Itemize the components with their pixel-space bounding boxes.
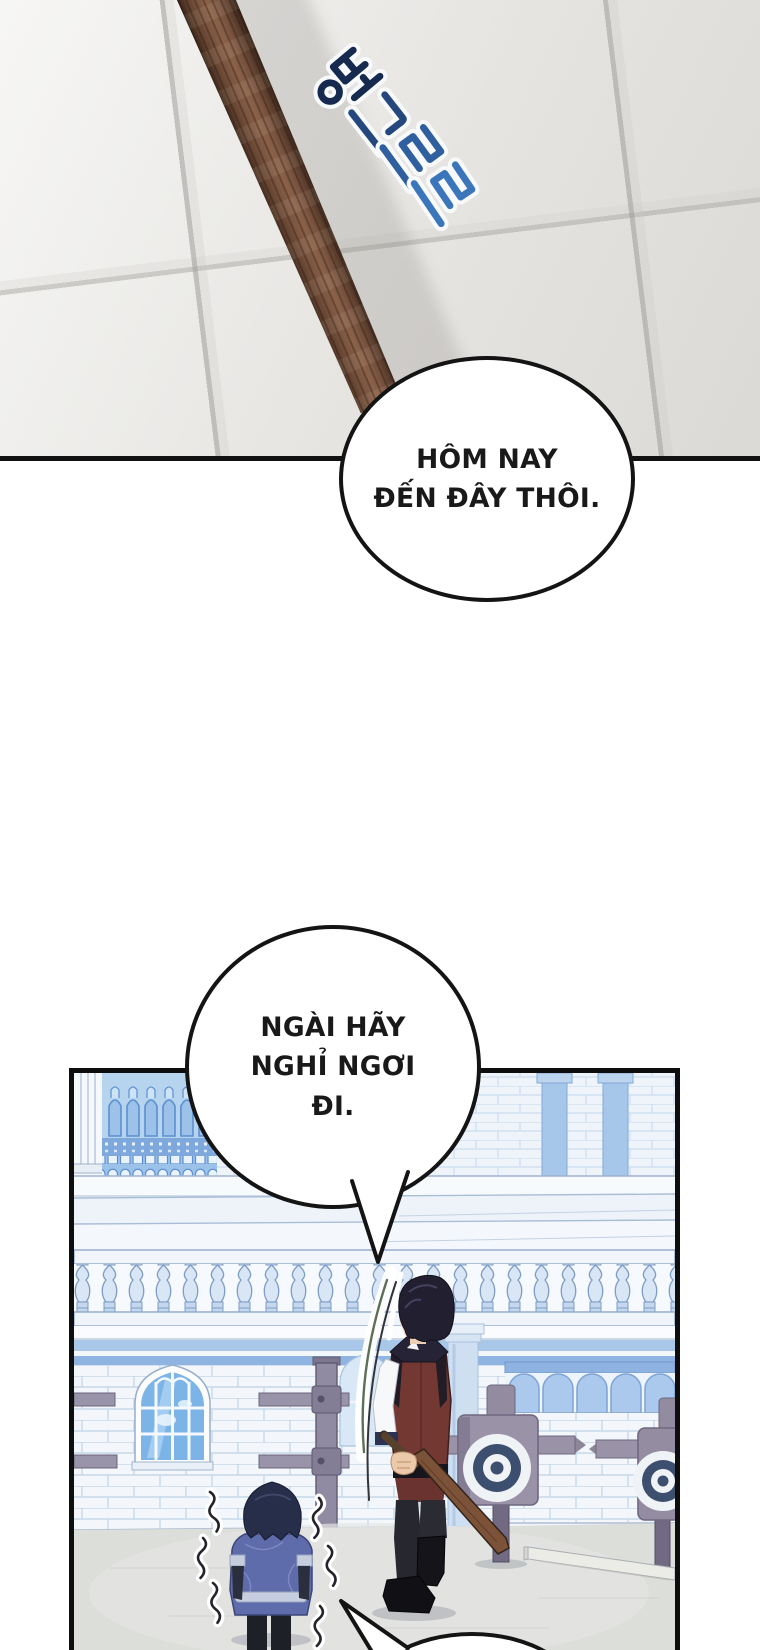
boy-hand-left	[232, 1566, 244, 1600]
boy-hand-right	[298, 1566, 310, 1600]
bubble-1-line-1: HÔM NAY	[416, 440, 558, 479]
man-hand	[391, 1452, 417, 1475]
boy-cuff-right	[297, 1555, 312, 1566]
comic-page: HÔM NAY ĐẾN ĐÂY THÔI. NGÀI HÃY NGHỈ NGƠI…	[0, 0, 760, 1650]
boy-leg-right	[271, 1613, 291, 1650]
speech-bubble-today-enough: HÔM NAY ĐẾN ĐÂY THÔI.	[339, 356, 635, 602]
bubble-2-line-2: NGHỈ NGƠI	[251, 1047, 416, 1086]
bubble-2-line-1: NGÀI HÃY	[260, 1008, 405, 1047]
target-rings-1	[463, 1434, 531, 1502]
speech-bubble-please-rest: NGÀI HÃY NGHỈ NGƠI ĐI.	[185, 925, 481, 1209]
bubble-1-line-2: ĐẾN ĐÂY THÔI.	[374, 479, 601, 518]
courtyard-ground	[74, 1523, 675, 1650]
sfx-spinning-korean	[296, 42, 496, 272]
boy-leg-left	[247, 1613, 267, 1650]
boy-cuff-left	[230, 1555, 245, 1566]
man-leg-back	[419, 1500, 447, 1538]
sfx-glyph-bing	[312, 48, 380, 114]
panel-top-tiled-floor	[0, 0, 760, 461]
boy-waistband	[235, 1592, 307, 1602]
arched-window-left	[132, 1365, 213, 1470]
bubble-2-line-3: ĐI.	[311, 1087, 354, 1126]
